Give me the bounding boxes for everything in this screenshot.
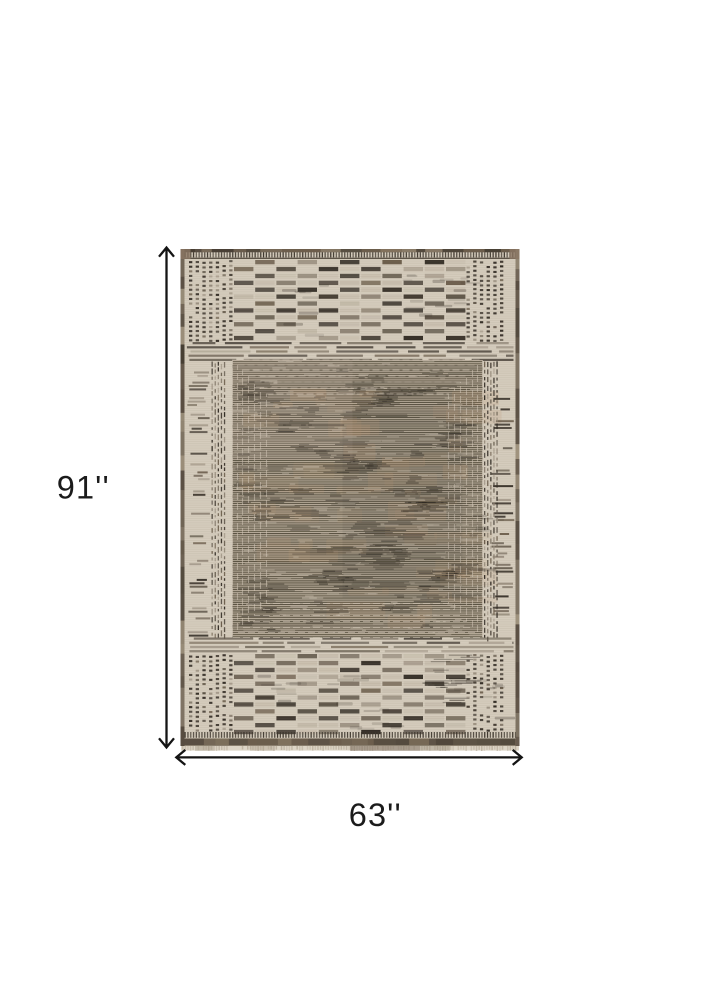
- svg-text:63'': 63'': [349, 797, 402, 833]
- svg-text:91'': 91'': [57, 470, 110, 506]
